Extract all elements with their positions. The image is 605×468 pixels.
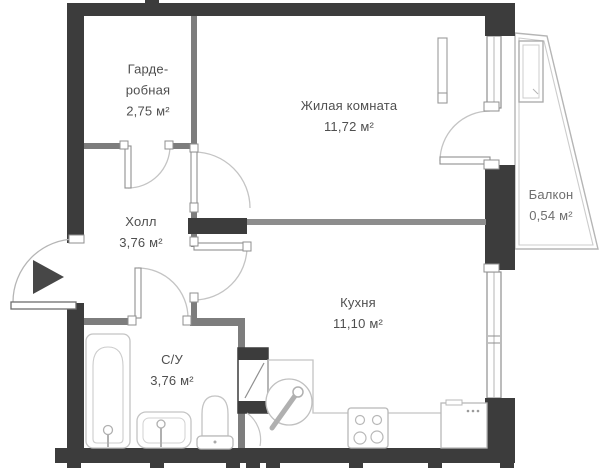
room-name: Холл: [119, 211, 163, 232]
living-room-window: [487, 36, 501, 108]
wall-left-lower: [67, 303, 84, 463]
bathroom-sink: [137, 412, 191, 448]
sink-faucet: [157, 420, 165, 428]
toilet: [197, 396, 233, 449]
wall-wardrobe-living: [191, 16, 197, 143]
stove: [348, 408, 388, 448]
wall-bathroom-top-left: [84, 318, 135, 325]
room-label-hall: Холл 3,76 м²: [119, 211, 163, 253]
kitchen-window: [487, 272, 501, 398]
bathroom-door: [135, 268, 188, 318]
wall-right-mid: [485, 165, 515, 270]
wall-right-bottom: [485, 398, 515, 463]
wall-bottom: [55, 448, 515, 463]
room-name: Балкон: [529, 184, 574, 205]
room-area: 3,76 м²: [150, 370, 194, 391]
entrance-arrow-icon: [33, 260, 64, 294]
radiator: [438, 38, 447, 103]
balcony-door: [440, 111, 490, 164]
room-label-bathroom: С/У 3,76 м²: [150, 349, 194, 391]
room-label-living: Жилая комната 11,72 м²: [301, 95, 398, 137]
kitchen-door: [194, 243, 247, 300]
floor-plan: Гарде- робная 2,75 м² Жилая комната 11,7…: [0, 0, 605, 468]
room-area: 2,75 м²: [126, 101, 171, 122]
floor-plan-drawing: [0, 0, 605, 468]
entrance-door: [11, 239, 76, 309]
tick-top: [145, 0, 159, 3]
wall-top: [67, 3, 503, 16]
room-name: Кухня: [333, 292, 383, 313]
room-label-wardrobe: Гарде- робная 2,75 м²: [126, 59, 171, 122]
entrance-door-leaf: [11, 302, 76, 309]
living-room-door: [191, 152, 250, 208]
room-name: С/У: [150, 349, 194, 370]
bathtub-faucet: [104, 426, 113, 435]
wall-living-kitchen: [247, 219, 486, 225]
room-area: 0,54 м²: [529, 205, 574, 226]
room-area: 3,76 м²: [119, 232, 163, 253]
bathtub: [86, 334, 130, 448]
room-name: Гарде-: [126, 59, 171, 80]
room-label-balcony: Балкон 0,54 м²: [529, 184, 574, 226]
room-name: Жилая комната: [301, 95, 398, 116]
wall-hall-stub: [188, 218, 247, 234]
wall-left-upper: [67, 3, 84, 243]
wall-bathroom-top-right: [190, 318, 245, 326]
wardrobe-door: [125, 146, 170, 188]
kitchen-sink: [266, 379, 312, 428]
wall-top-right-pier: [485, 3, 515, 36]
room-name: робная: [126, 80, 171, 101]
fridge: [441, 400, 487, 448]
room-label-kitchen: Кухня 11,10 м²: [333, 292, 383, 334]
room-area: 11,72 м²: [301, 116, 398, 137]
room-area: 11,10 м²: [333, 313, 383, 334]
